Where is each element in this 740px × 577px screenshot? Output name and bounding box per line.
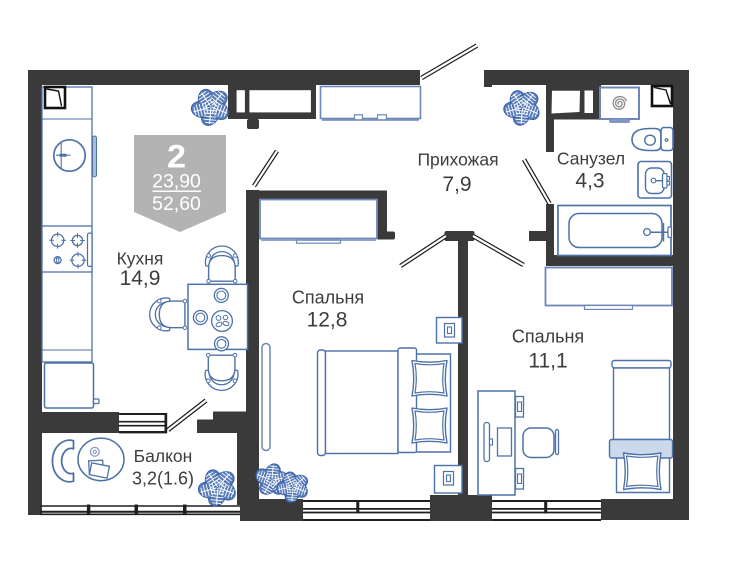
svg-text:2: 2	[167, 139, 186, 175]
svg-text:Кухня: Кухня	[117, 249, 164, 269]
svg-text:14,9: 14,9	[120, 267, 161, 290]
svg-text:7,9: 7,9	[442, 173, 471, 196]
svg-text:4,3: 4,3	[575, 170, 604, 193]
svg-text:12,8: 12,8	[307, 309, 348, 332]
svg-text:3,2(1.6): 3,2(1.6)	[132, 469, 194, 489]
svg-text:11,1: 11,1	[528, 350, 567, 373]
svg-text:23,90: 23,90	[152, 171, 201, 193]
svg-text:Прихожая: Прихожая	[417, 150, 498, 170]
svg-text:Спальня: Спальня	[512, 327, 584, 347]
svg-text:Санузел: Санузел	[557, 149, 625, 169]
svg-text:Балкон: Балкон	[134, 446, 193, 466]
svg-text:Спальня: Спальня	[292, 288, 364, 308]
svg-text:52,60: 52,60	[152, 193, 201, 215]
